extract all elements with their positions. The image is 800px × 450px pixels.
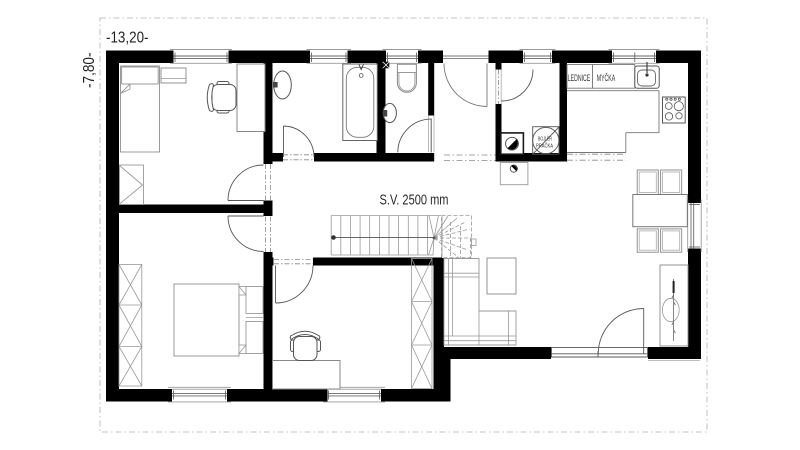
svg-text:BOJLER: BOJLER (538, 137, 552, 143)
svg-text:-7,80-: -7,80- (81, 53, 98, 89)
svg-text:S.V. 2500 mm: S.V. 2500 mm (380, 193, 449, 209)
svg-text:PRAČKA: PRAČKA (536, 143, 554, 150)
svg-text:-13,20-: -13,20- (106, 30, 149, 47)
svg-text:LEDNICE: LEDNICE (568, 73, 591, 83)
svg-text:MYČKA: MYČKA (597, 73, 616, 83)
